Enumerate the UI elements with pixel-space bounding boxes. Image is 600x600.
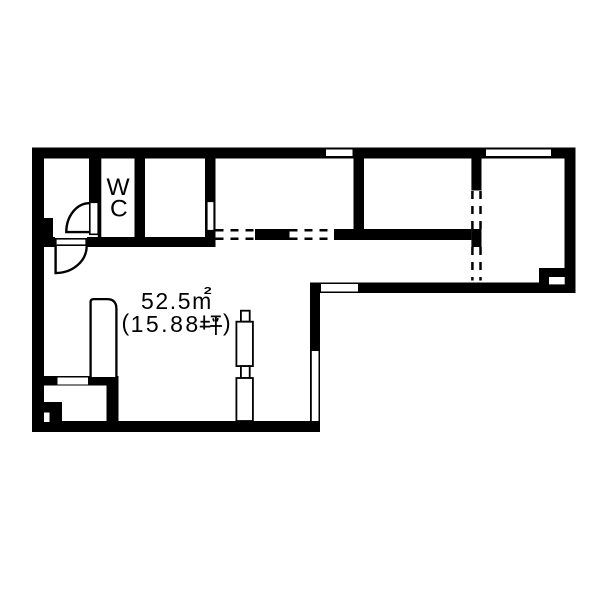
svg-text:2: 2 [204, 286, 213, 297]
svg-text:15.88: 15.88 [131, 311, 201, 337]
svg-text:C: C [110, 196, 128, 223]
svg-text:(: ( [122, 310, 130, 336]
svg-text:): ) [223, 310, 231, 336]
